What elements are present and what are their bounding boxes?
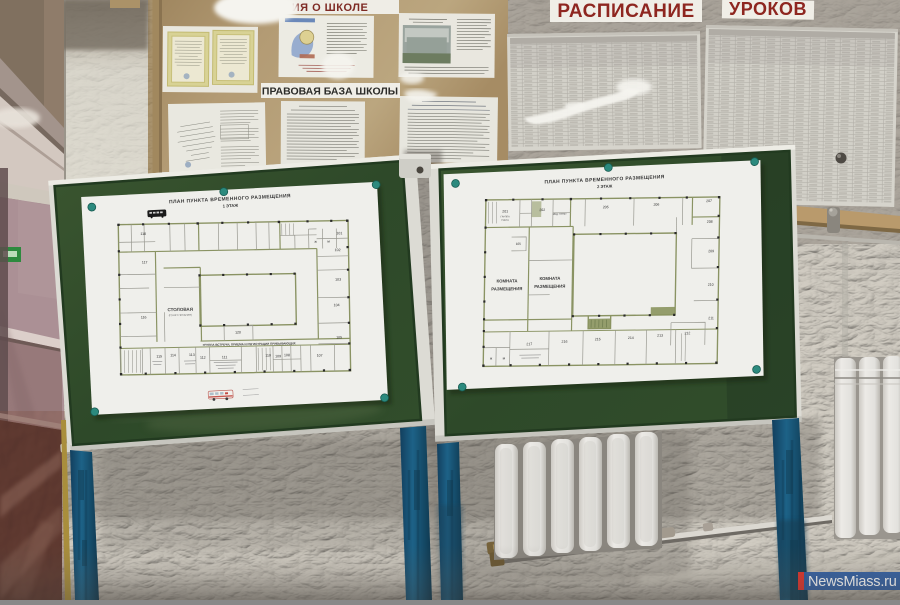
svg-text:115: 115 [156,355,162,359]
svg-text:120: 120 [235,330,241,334]
svg-text:212: 212 [684,331,690,335]
svg-text:105: 105 [336,336,342,340]
svg-text:202: 202 [539,208,545,212]
svg-text:217: 217 [526,342,532,346]
svg-text:СТОЛОВАЯ: СТОЛОВАЯ [167,307,193,312]
svg-text:213: 213 [657,334,663,338]
svg-text:109: 109 [275,354,281,358]
svg-text:211: 211 [708,316,714,320]
svg-text:УЧЕТА: УЧЕТА [501,219,509,222]
svg-text:105: 105 [516,242,522,246]
svg-text:111: 111 [222,355,228,359]
svg-text:114: 114 [170,353,176,357]
svg-text:112: 112 [200,356,206,360]
svg-text:110: 110 [265,354,271,358]
svg-text:РАЗМЕЩЕНИЯ: РАЗМЕЩЕНИЯ [534,284,565,289]
svg-text:ГРУППА: ГРУППА [501,215,511,218]
svg-text:104: 104 [334,303,340,307]
svg-text:107: 107 [317,354,323,358]
svg-text:118: 118 [140,232,146,236]
svg-text:216: 216 [562,340,568,344]
svg-text:201: 201 [502,209,508,213]
svg-text:МЕД. ПУНКТ: МЕД. ПУНКТ [553,214,568,216]
svg-text:1 ЭТАЖ: 1 ЭТАЖ [223,203,239,209]
svg-text:205: 205 [603,205,609,209]
svg-text:116: 116 [141,316,147,320]
svg-text:214: 214 [628,336,634,340]
svg-text:208: 208 [707,220,713,224]
svg-text:РАСПИСАНИЕ: РАСПИСАНИЕ [557,1,694,22]
svg-text:209: 209 [708,249,714,253]
svg-text:102: 102 [335,248,341,252]
svg-text:ПРАВОВАЯ БАЗА ШКОЛЫ: ПРАВОВАЯ БАЗА ШКОЛЫ [262,86,398,98]
svg-text:206: 206 [653,203,659,207]
svg-text:215: 215 [595,337,601,341]
svg-text:207: 207 [706,199,712,203]
svg-text:2 ЭТАЖ: 2 ЭТАЖ [597,183,613,189]
svg-text:РАЗМЕЩЕНИЯ: РАЗМЕЩЕНИЯ [491,286,522,291]
svg-text:103: 103 [335,278,341,282]
svg-text:(ПУНКТ ПИТАНИЯ): (ПУНКТ ПИТАНИЯ) [169,313,192,317]
svg-text:108: 108 [284,353,290,357]
svg-text:117: 117 [142,260,148,264]
svg-text:210: 210 [708,283,714,287]
svg-text:УРОКОВ: УРОКОВ [729,0,807,19]
svg-text:ИЯ О ШКОЛЕ: ИЯ О ШКОЛЕ [292,2,369,14]
svg-text:113: 113 [189,353,195,357]
svg-text:КОМНАТА: КОМНАТА [497,278,518,283]
svg-text:101: 101 [336,231,342,235]
svg-text:КОМНАТА: КОМНАТА [539,276,560,281]
